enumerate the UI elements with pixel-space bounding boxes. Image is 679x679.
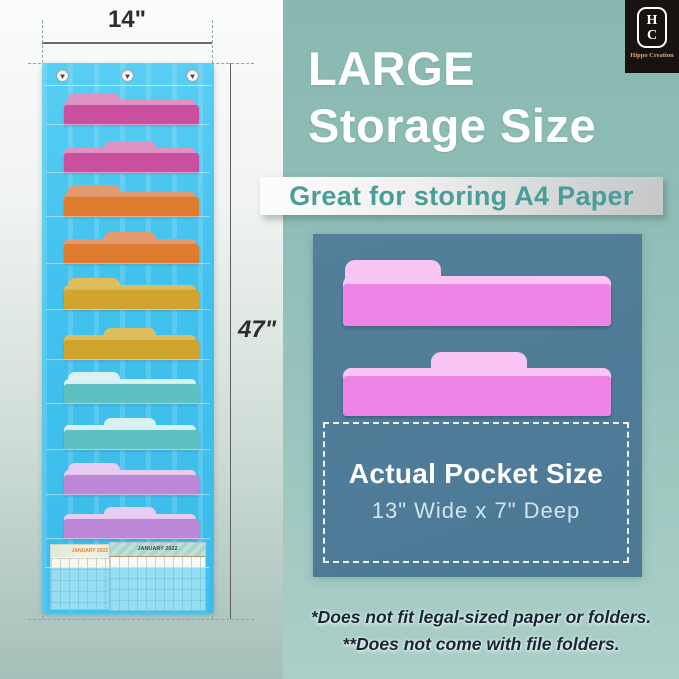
closeup-folder-tab-left: [343, 260, 611, 326]
pocket-seam: [46, 449, 210, 451]
width-dimension-label: 14": [42, 6, 212, 34]
product-infographic: 14" 47" JANUARY 2022 JANUARY 2022: [0, 0, 679, 679]
folder-body: [64, 105, 199, 125]
folder-body: [64, 197, 199, 217]
folder-body: [64, 153, 199, 173]
pocket-chart: JANUARY 2022 JANUARY 2022: [42, 63, 214, 613]
folder-body: [64, 475, 199, 495]
monogram-c: C: [647, 28, 657, 43]
headline-line2: Storage Size: [308, 97, 596, 154]
file-folder: [64, 93, 196, 125]
brand-logo: H C Hippo Creation: [625, 0, 679, 73]
height-dimension-line: [230, 63, 231, 619]
pocket-seam: [46, 124, 210, 126]
height-dimension-label: 47": [238, 316, 284, 344]
calendar-right-month: JANUARY 2022: [137, 546, 177, 552]
folder-stack: [42, 63, 214, 613]
folder-body: [64, 384, 199, 404]
pocket-seam: [46, 216, 210, 218]
monogram-h: H: [647, 13, 658, 28]
file-folder: [64, 463, 196, 495]
subheadline-banner: Great for storing A4 Paper: [260, 177, 663, 215]
folder-body: [343, 284, 611, 326]
pocket-seam: [46, 263, 210, 265]
folder-body: [64, 430, 199, 450]
folder-body: [64, 290, 199, 310]
pocket-closeup: Actual Pocket Size 13" Wide x 7" Deep: [313, 234, 642, 577]
pocket-film-overlay: [45, 567, 209, 615]
folder-body: [64, 244, 199, 264]
file-folder: [64, 185, 196, 217]
file-folder: [64, 507, 196, 539]
file-folder: [64, 418, 196, 450]
pocket-seam: [46, 403, 210, 405]
calendar-pocket: JANUARY 2022 JANUARY 2022: [48, 541, 206, 612]
width-dimension-line: [42, 42, 212, 44]
folder-body: [64, 340, 199, 360]
file-folder: [64, 372, 196, 404]
folder-body: [64, 519, 199, 539]
pocket-size-dimensions: 13" Wide x 7" Deep: [325, 498, 627, 524]
brand-monogram-badge: H C: [637, 7, 667, 48]
calendar-left-header: JANUARY 2022: [51, 545, 111, 557]
disclaimer-line1: *Does not fit legal-sized paper or folde…: [283, 604, 679, 631]
file-folder: [64, 141, 196, 173]
pocket-size-callout: Actual Pocket Size 13" Wide x 7" Deep: [323, 422, 629, 563]
pocket-seam: [46, 172, 210, 174]
file-folder: [64, 328, 196, 360]
pocket-seam: [46, 309, 210, 311]
calendar-right-header: JANUARY 2022: [110, 543, 205, 557]
calendar-left-month: JANUARY 2022: [72, 548, 108, 554]
disclaimer-line2: **Does not come with file folders.: [283, 631, 679, 658]
headline: LARGE Storage Size: [308, 40, 596, 154]
disclaimers: *Does not fit legal-sized paper or folde…: [283, 604, 679, 658]
subheadline-text: Great for storing A4 Paper: [289, 181, 633, 212]
file-folder: [64, 232, 196, 264]
brand-name: Hippo Creation: [630, 52, 673, 59]
pocket-seam: [46, 538, 210, 540]
folder-body: [343, 376, 611, 416]
pocket-seam: [46, 494, 210, 496]
file-folder: [64, 278, 196, 310]
pocket-size-title: Actual Pocket Size: [325, 458, 627, 490]
closeup-folder-tab-center: [343, 352, 611, 416]
pocket-seam: [46, 359, 210, 361]
dashed-guide-bottom: [28, 619, 254, 620]
headline-line1: LARGE: [308, 40, 596, 97]
